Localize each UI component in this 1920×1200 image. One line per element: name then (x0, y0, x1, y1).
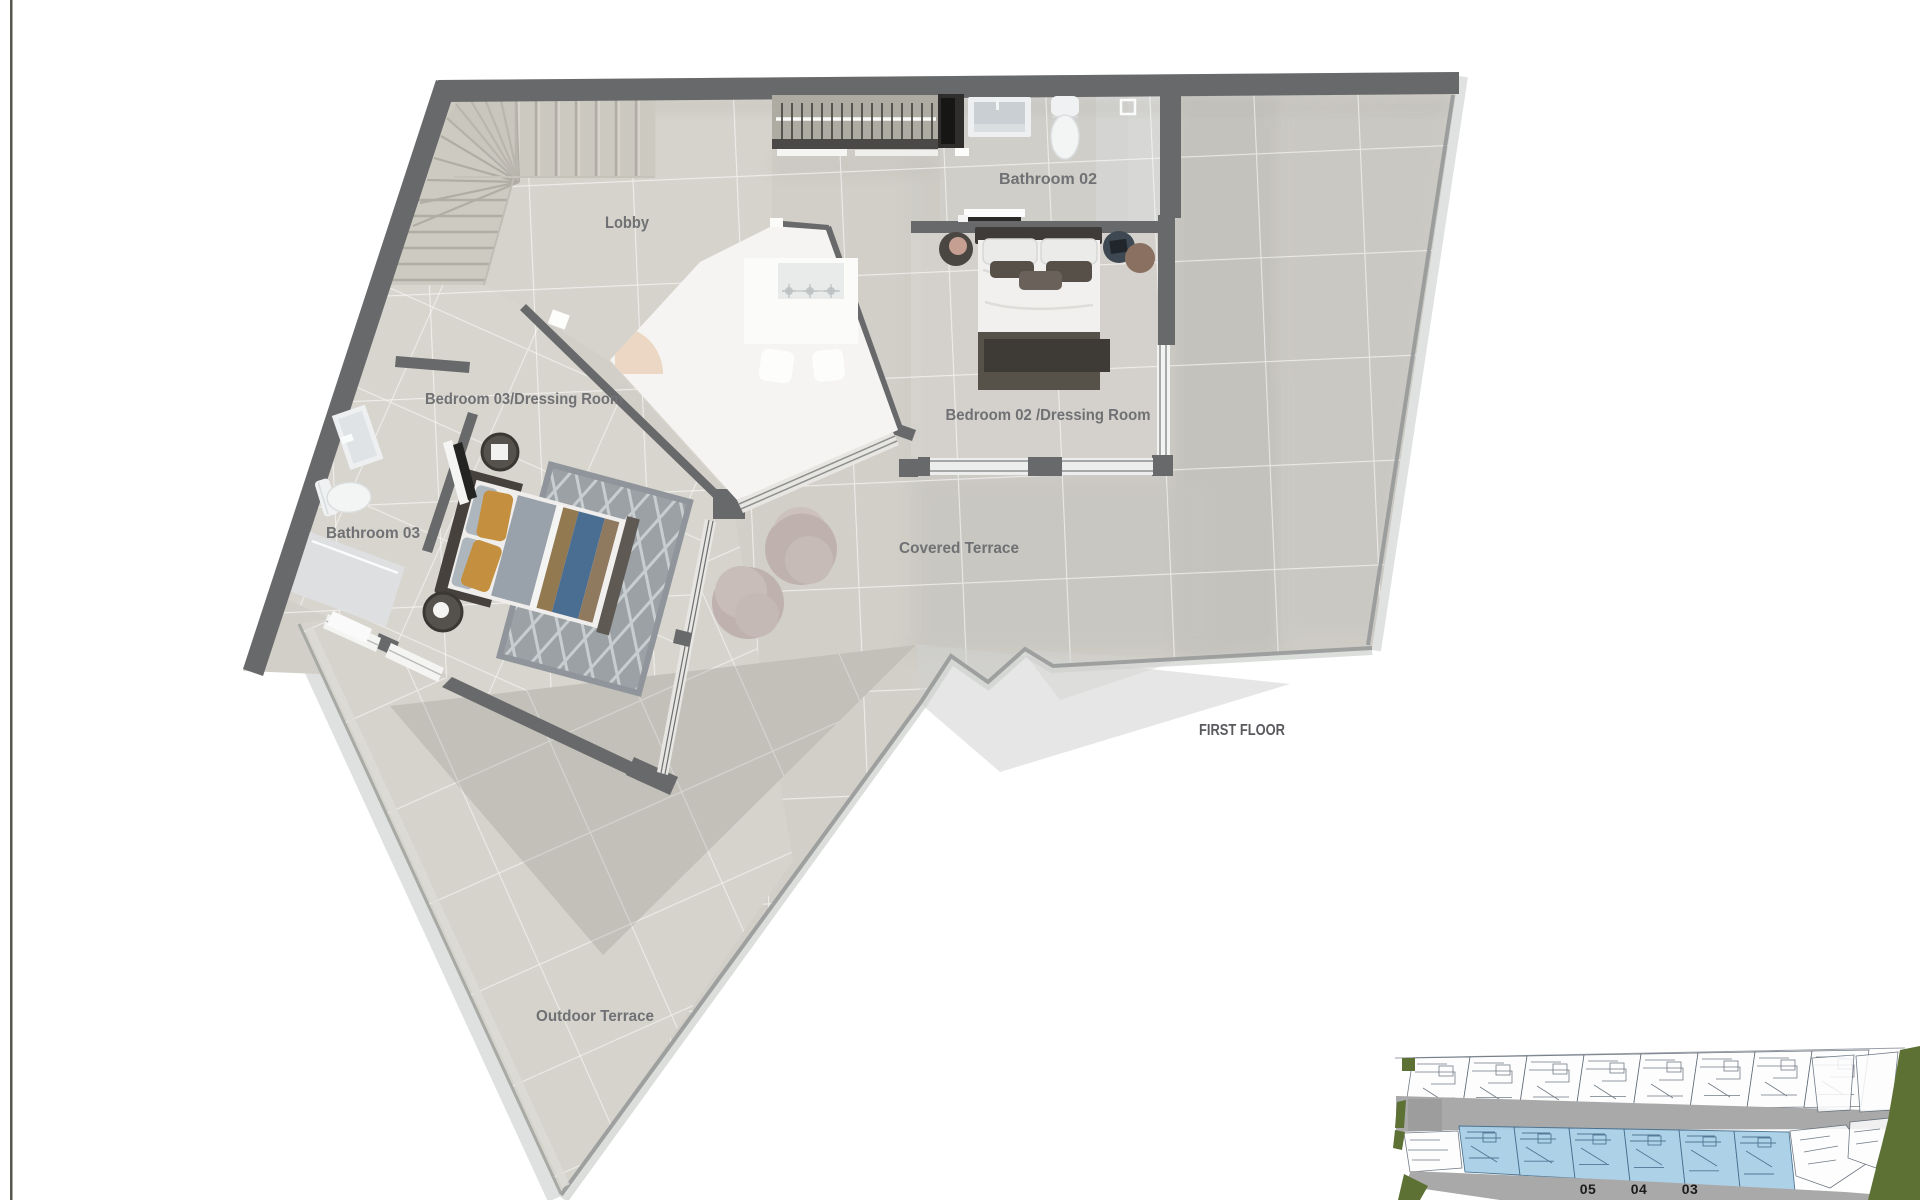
svg-text:Bedroom 03/Dressing Room: Bedroom 03/Dressing Room (425, 391, 623, 408)
svg-text:Lobby: Lobby (605, 213, 649, 232)
svg-text:Bedroom 02 /Dressing Room: Bedroom 02 /Dressing Room (946, 407, 1151, 424)
svg-text:05: 05 (1580, 1181, 1597, 1197)
svg-text:03: 03 (1682, 1181, 1699, 1197)
svg-text:Bathroom 02: Bathroom 02 (999, 171, 1097, 188)
svg-text:Outdoor Terrace: Outdoor Terrace (536, 1008, 654, 1025)
svg-text:04: 04 (1631, 1181, 1648, 1197)
svg-text:Covered Terrace: Covered Terrace (899, 540, 1019, 557)
svg-text:Bathroom 03: Bathroom 03 (326, 525, 420, 542)
svg-text:FIRST FLOOR: FIRST FLOOR (1199, 722, 1285, 739)
